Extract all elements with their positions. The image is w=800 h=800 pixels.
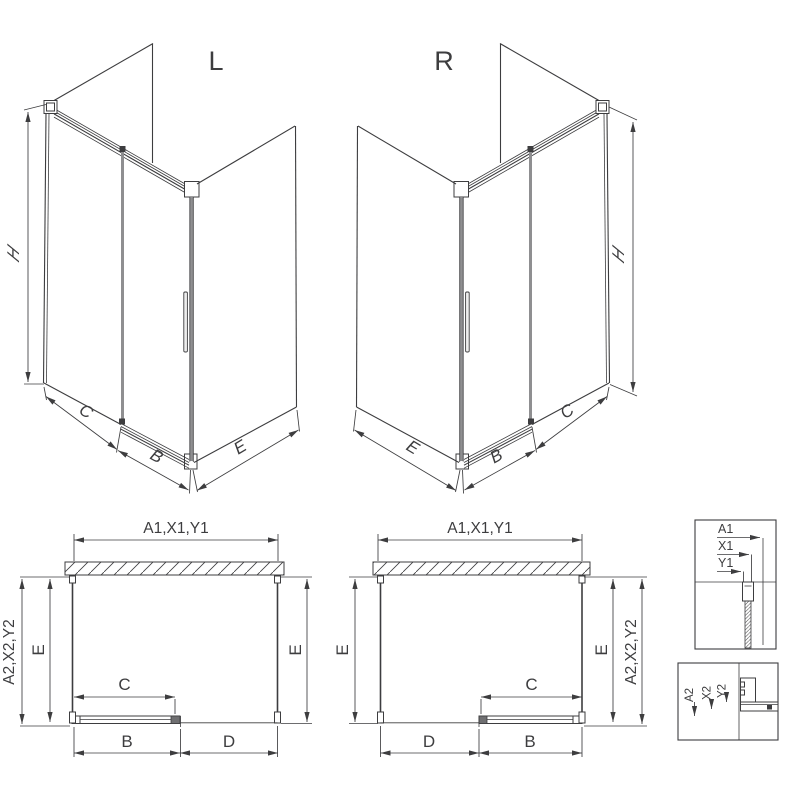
iso-right-dimensions: H C B E	[354, 107, 638, 494]
plan-right-door-rail	[381, 712, 586, 727]
technical-drawing-page: L	[0, 0, 800, 800]
detail-bottom-label-a2: A2	[684, 688, 696, 702]
detail-view-top: A1 X1 Y1	[695, 520, 776, 649]
detail-view-bottom: A2 X2 Y2	[678, 663, 778, 740]
variant-label-right: R	[434, 46, 454, 76]
plan-right-dim-d: D	[423, 732, 435, 751]
wall-hatch-left-plan	[65, 562, 284, 575]
plan-left-door-rail	[70, 712, 278, 727]
door-handle-right	[466, 292, 470, 352]
dim-label-h-right: H	[608, 242, 627, 267]
detail-bottom-label-x2: X2	[702, 686, 714, 700]
bottom-rail-section	[741, 702, 779, 711]
detail-top-label-y1: Y1	[718, 556, 733, 570]
plan-view-left: A1,X1,Y1 A2,X2,Y2 E E	[1, 520, 312, 757]
roller-top-right	[528, 146, 534, 152]
iso-left-structure	[44, 44, 297, 470]
detail-top-label-x1: X1	[718, 539, 733, 553]
iso-right-structure	[357, 44, 610, 470]
iso-left-dimensions: H C B E	[3, 105, 299, 494]
roller-top-left	[120, 146, 126, 152]
plan-left-dim-c: C	[118, 675, 130, 694]
plan-left-dim-side: A2,X2,Y2	[1, 619, 18, 685]
plan-view-right: A1,X1,Y1 E E A2,X2,Y2	[333, 520, 647, 757]
shower-enclosure-drawing: L	[0, 0, 800, 800]
plan-left-dim-d: D	[223, 732, 235, 751]
detail-bottom-label-y2: Y2	[717, 684, 729, 698]
roller-section-dot	[767, 705, 772, 710]
door-handle-left	[184, 292, 188, 352]
plan-left-dim-b: B	[121, 732, 132, 751]
dim-label-e-left: E	[230, 436, 250, 458]
plan-left-dim-top: A1,X1,Y1	[143, 520, 209, 537]
dim-label-b-right: B	[487, 445, 506, 467]
variant-label-left: L	[208, 46, 223, 76]
dim-label-e-right: E	[403, 436, 423, 458]
dim-label-h-left: H	[3, 241, 22, 266]
corner-block-top-right	[454, 182, 469, 198]
plan-left-dim-e-left: E	[29, 644, 48, 655]
iso-view-right: R	[354, 44, 638, 494]
dim-label-b-left: B	[147, 445, 166, 467]
detail-top-label-a1: A1	[718, 522, 733, 536]
plan-right-dim-c: C	[525, 675, 537, 694]
wall-hatch-right-plan	[373, 562, 590, 575]
plan-right-dim-b: B	[524, 732, 535, 751]
iso-view-left: L	[3, 44, 299, 494]
corner-block-top-left	[185, 182, 200, 198]
plan-right-dim-e-left: E	[333, 644, 352, 655]
plan-right-dim-side: A2,X2,Y2	[623, 619, 640, 685]
plan-left-dim-e-right: E	[286, 644, 305, 655]
dim-label-c-left: C	[76, 400, 97, 423]
dim-label-c-right: C	[557, 400, 578, 423]
plan-right-dim-top: A1,X1,Y1	[447, 520, 513, 537]
plan-right-dim-e-right: E	[592, 644, 611, 655]
detail-top-frame	[695, 520, 776, 649]
glass-clamp-section	[743, 582, 754, 601]
